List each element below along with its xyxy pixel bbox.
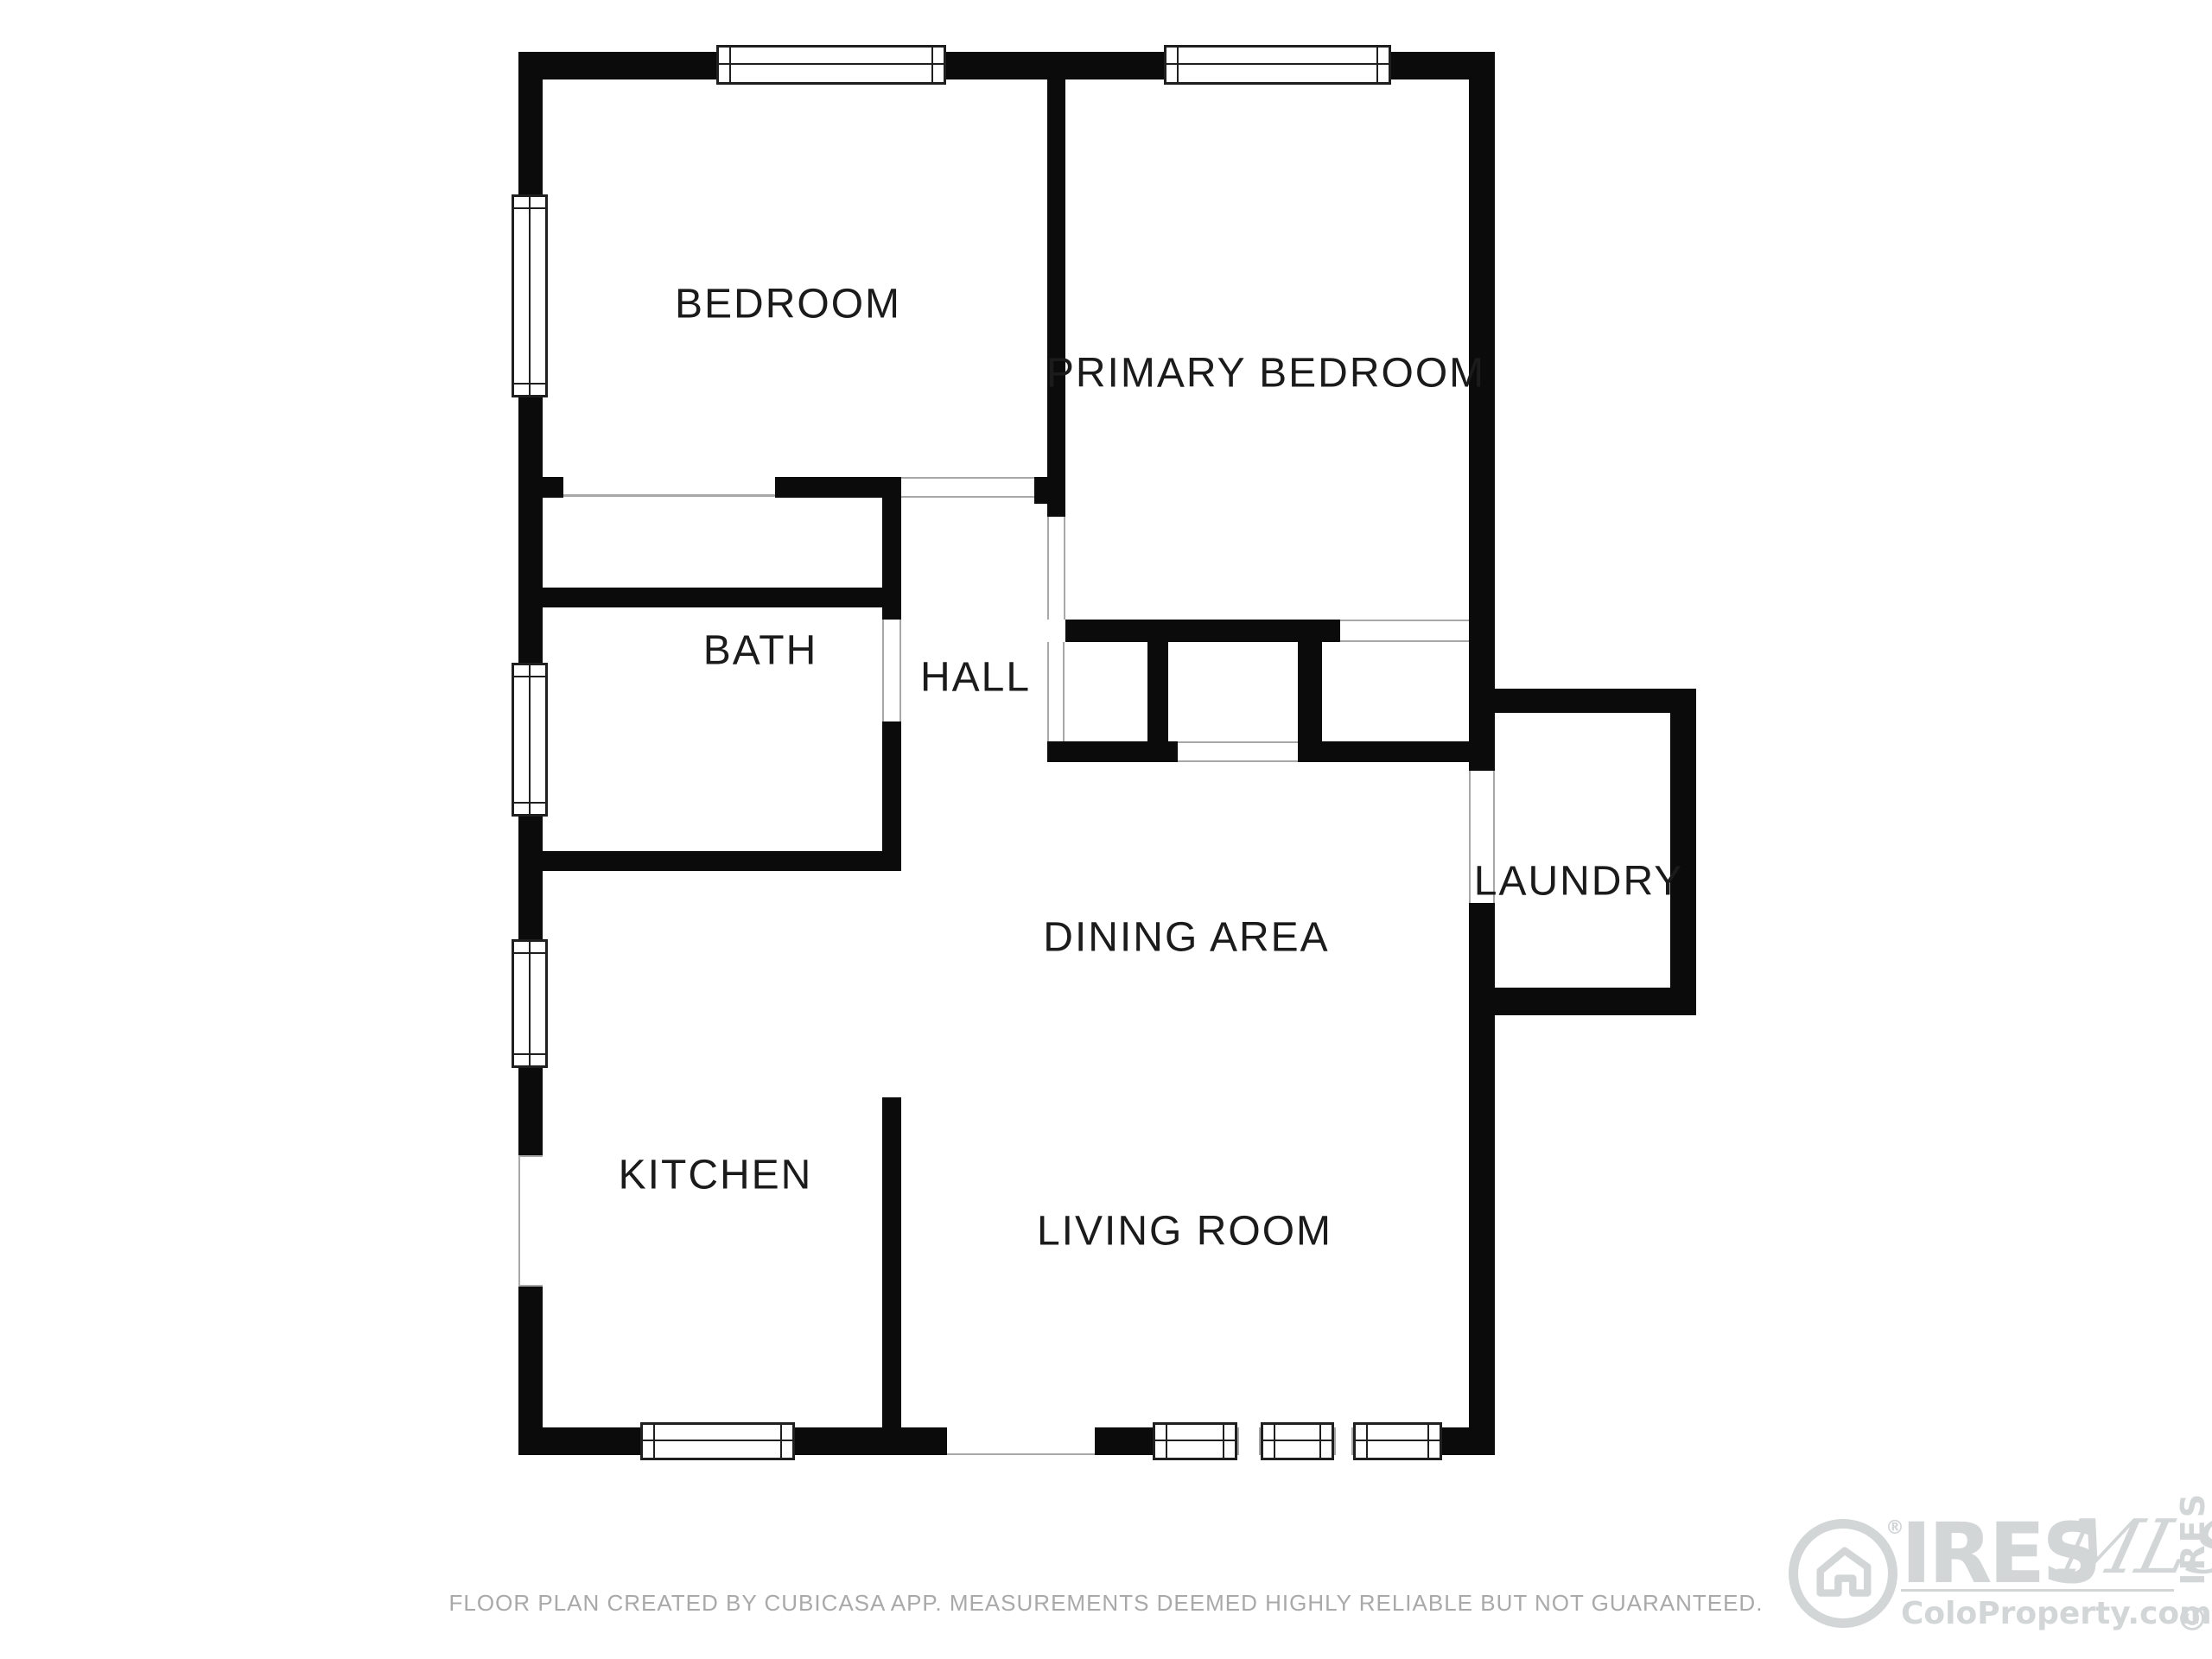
window-sash-line bbox=[529, 942, 531, 1065]
window-sash-line bbox=[1155, 1440, 1235, 1441]
window-sash-line bbox=[1356, 1440, 1440, 1441]
room-label-hall: HALL bbox=[920, 654, 1031, 702]
kitchen-bottom-window bbox=[640, 1422, 795, 1460]
window-sash-line bbox=[1166, 63, 1389, 65]
bath-left-window bbox=[512, 663, 548, 817]
primary-closet-opening bbox=[1340, 620, 1469, 642]
room-label-primary-bedroom: PRIMARY BEDROOM bbox=[1046, 350, 1485, 397]
wall-segment bbox=[543, 851, 901, 871]
room-label-bedroom: BEDROOM bbox=[675, 281, 901, 328]
bedroom-closet-front bbox=[563, 494, 775, 497]
wall-segment bbox=[882, 1097, 901, 1455]
bedroom-top-window bbox=[716, 45, 946, 85]
hall-closet-opening bbox=[1047, 642, 1065, 741]
window-sash-line bbox=[529, 197, 531, 395]
wall-segment bbox=[1047, 79, 1065, 517]
kitchen-left-window bbox=[512, 939, 548, 1068]
window-mullion-1 bbox=[1237, 1427, 1261, 1455]
room-label-dining-area: DINING AREA bbox=[1043, 914, 1329, 962]
wall-segment bbox=[543, 588, 901, 607]
primary-top-window bbox=[1164, 45, 1391, 85]
wall-segment bbox=[1047, 741, 1178, 762]
bedroom-left-window bbox=[512, 194, 548, 397]
wall-segment bbox=[1469, 79, 1495, 771]
kitchen-side-opening bbox=[518, 1155, 543, 1287]
window-sash-line bbox=[931, 48, 933, 82]
wall-segment bbox=[1495, 988, 1696, 1015]
room-label-living-room: LIVING ROOM bbox=[1037, 1208, 1332, 1255]
wall-segment bbox=[1495, 689, 1696, 713]
wall-segment bbox=[1065, 620, 1340, 642]
entry-opening bbox=[947, 1427, 1095, 1455]
window-sash-line bbox=[529, 665, 531, 814]
window-mullion-2 bbox=[1334, 1427, 1353, 1455]
mid-closet-opening bbox=[1178, 741, 1298, 762]
wall-segment bbox=[1298, 741, 1469, 762]
window-sash-line bbox=[719, 63, 944, 65]
living-window-2 bbox=[1261, 1422, 1334, 1460]
bath-door bbox=[882, 620, 901, 721]
wall-segment bbox=[543, 477, 563, 498]
window-sash-line bbox=[1177, 48, 1179, 82]
footer-disclaimer: FLOOR PLAN CREATED BY CUBICASA APP. MEAS… bbox=[0, 1590, 2212, 1617]
window-sash-line bbox=[1376, 48, 1378, 82]
wall-segment bbox=[1034, 477, 1065, 504]
window-sash-line bbox=[1263, 1440, 1332, 1441]
living-window-1 bbox=[1153, 1422, 1237, 1460]
primary-door bbox=[1047, 517, 1065, 620]
wall-segment bbox=[882, 721, 901, 871]
wall-segment bbox=[1469, 903, 1495, 1427]
window-sash-line bbox=[729, 48, 731, 82]
room-label-laundry: LAUNDRY bbox=[1474, 858, 1684, 906]
wall-segment bbox=[1670, 689, 1696, 1015]
room-label-kitchen: KITCHEN bbox=[619, 1152, 813, 1199]
wall-segment bbox=[1147, 642, 1168, 741]
wall-segment bbox=[1298, 642, 1322, 741]
page: BEDROOMPRIMARY BEDROOMBATHHALLDINING ARE… bbox=[0, 0, 2212, 1659]
window-sash-line bbox=[643, 1440, 792, 1441]
floor-plan: BEDROOMPRIMARY BEDROOMBATHHALLDINING ARE… bbox=[0, 0, 2212, 1659]
bedroom-door bbox=[901, 477, 1034, 498]
living-window-3 bbox=[1353, 1422, 1442, 1460]
room-label-bath: BATH bbox=[703, 627, 817, 675]
